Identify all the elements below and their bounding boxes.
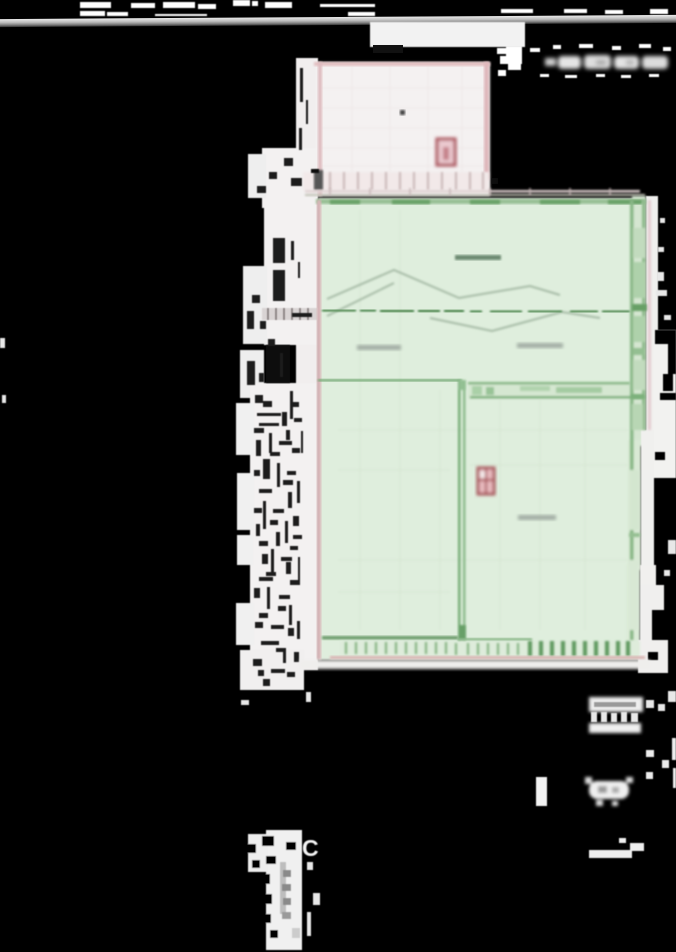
- svg-text:C: C: [302, 835, 319, 861]
